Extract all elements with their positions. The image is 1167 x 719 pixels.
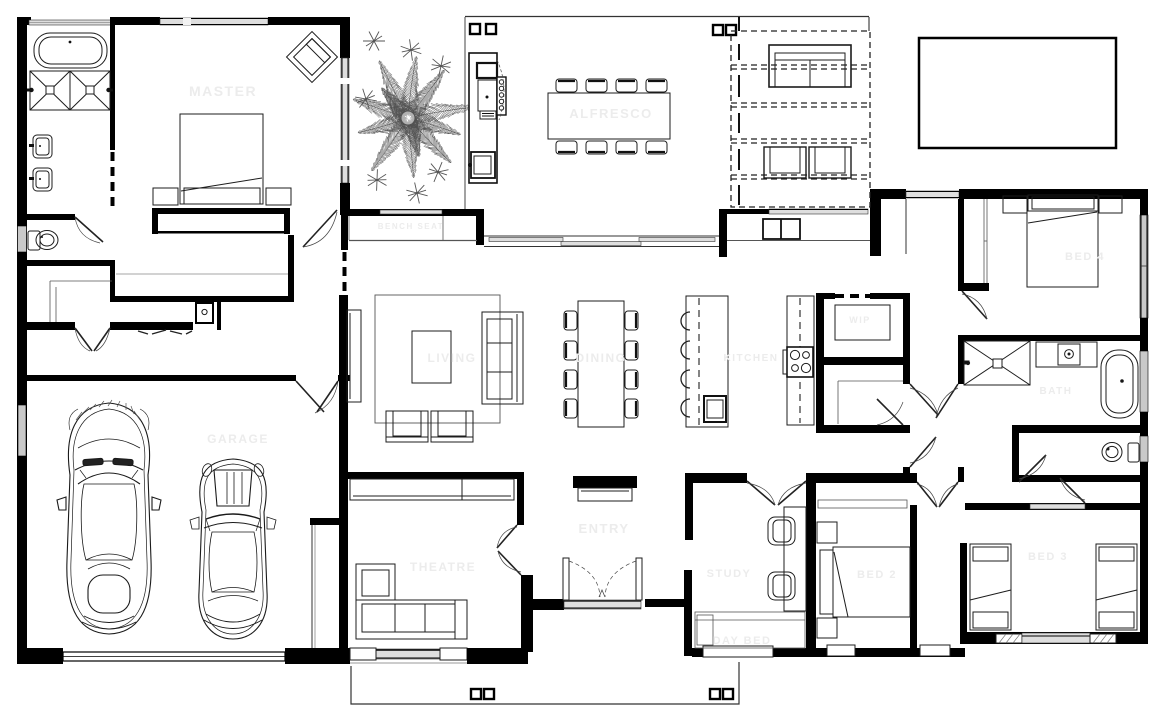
- svg-text:ALFRESCO: ALFRESCO: [569, 106, 653, 121]
- svg-text:THEATRE: THEATRE: [410, 560, 476, 574]
- svg-text:DINING: DINING: [576, 351, 627, 365]
- svg-text:KITCHEN: KITCHEN: [724, 353, 779, 364]
- svg-text:BED 2: BED 2: [857, 569, 897, 581]
- svg-text:GARAGE: GARAGE: [207, 432, 269, 446]
- svg-text:BED 4: BED 4: [1065, 251, 1105, 263]
- svg-text:ENTRY: ENTRY: [578, 521, 629, 536]
- svg-text:LIVING: LIVING: [427, 351, 476, 365]
- svg-text:MASTER: MASTER: [189, 83, 257, 99]
- svg-text:BED 3: BED 3: [1028, 551, 1068, 563]
- svg-text:DAY BED: DAY BED: [713, 635, 772, 647]
- svg-text:WIP: WIP: [849, 315, 871, 325]
- svg-text:BATH: BATH: [1039, 386, 1072, 397]
- svg-text:BENCH SEAT: BENCH SEAT: [378, 222, 444, 231]
- svg-text:STUDY: STUDY: [707, 568, 752, 580]
